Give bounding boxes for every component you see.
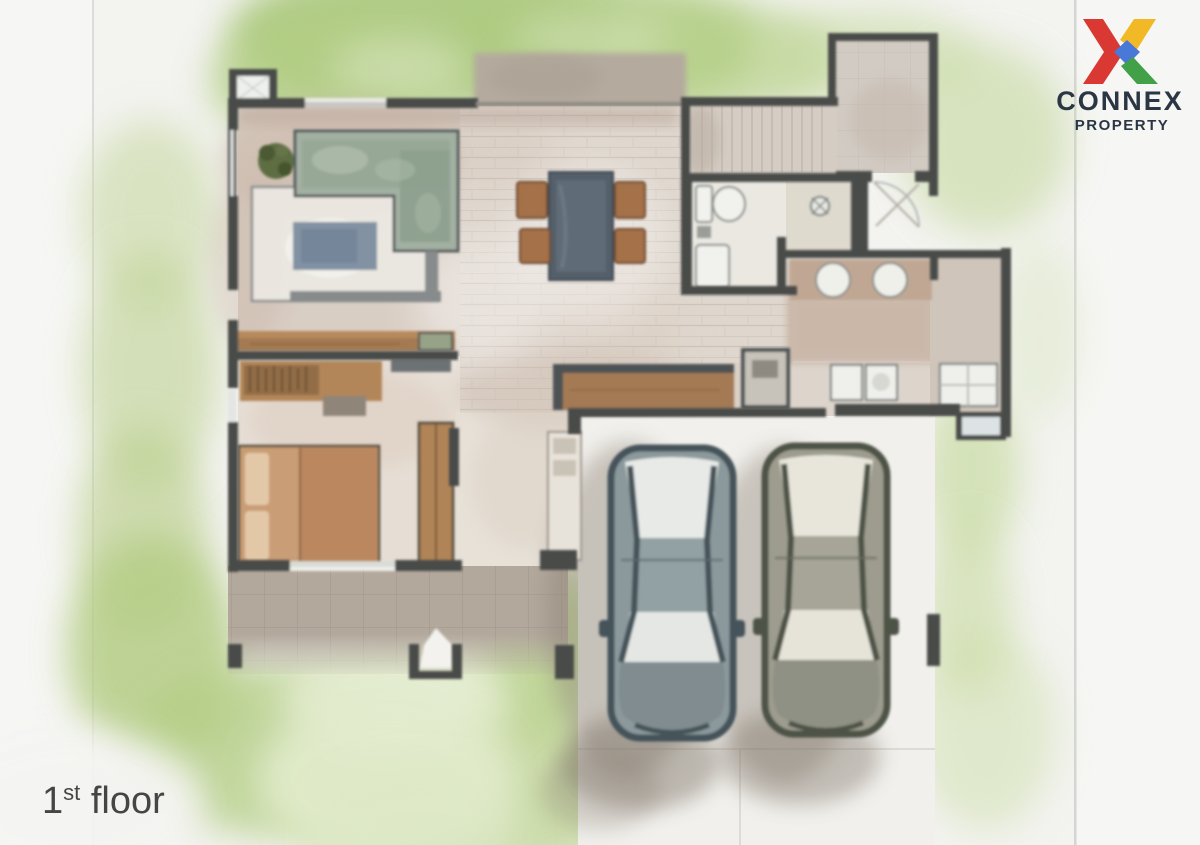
svg-text:CONNEX: CONNEX xyxy=(1056,86,1184,116)
svg-text:PROPERTY: PROPERTY xyxy=(1075,117,1170,134)
svg-text:1st floor: 1st floor xyxy=(42,780,165,822)
